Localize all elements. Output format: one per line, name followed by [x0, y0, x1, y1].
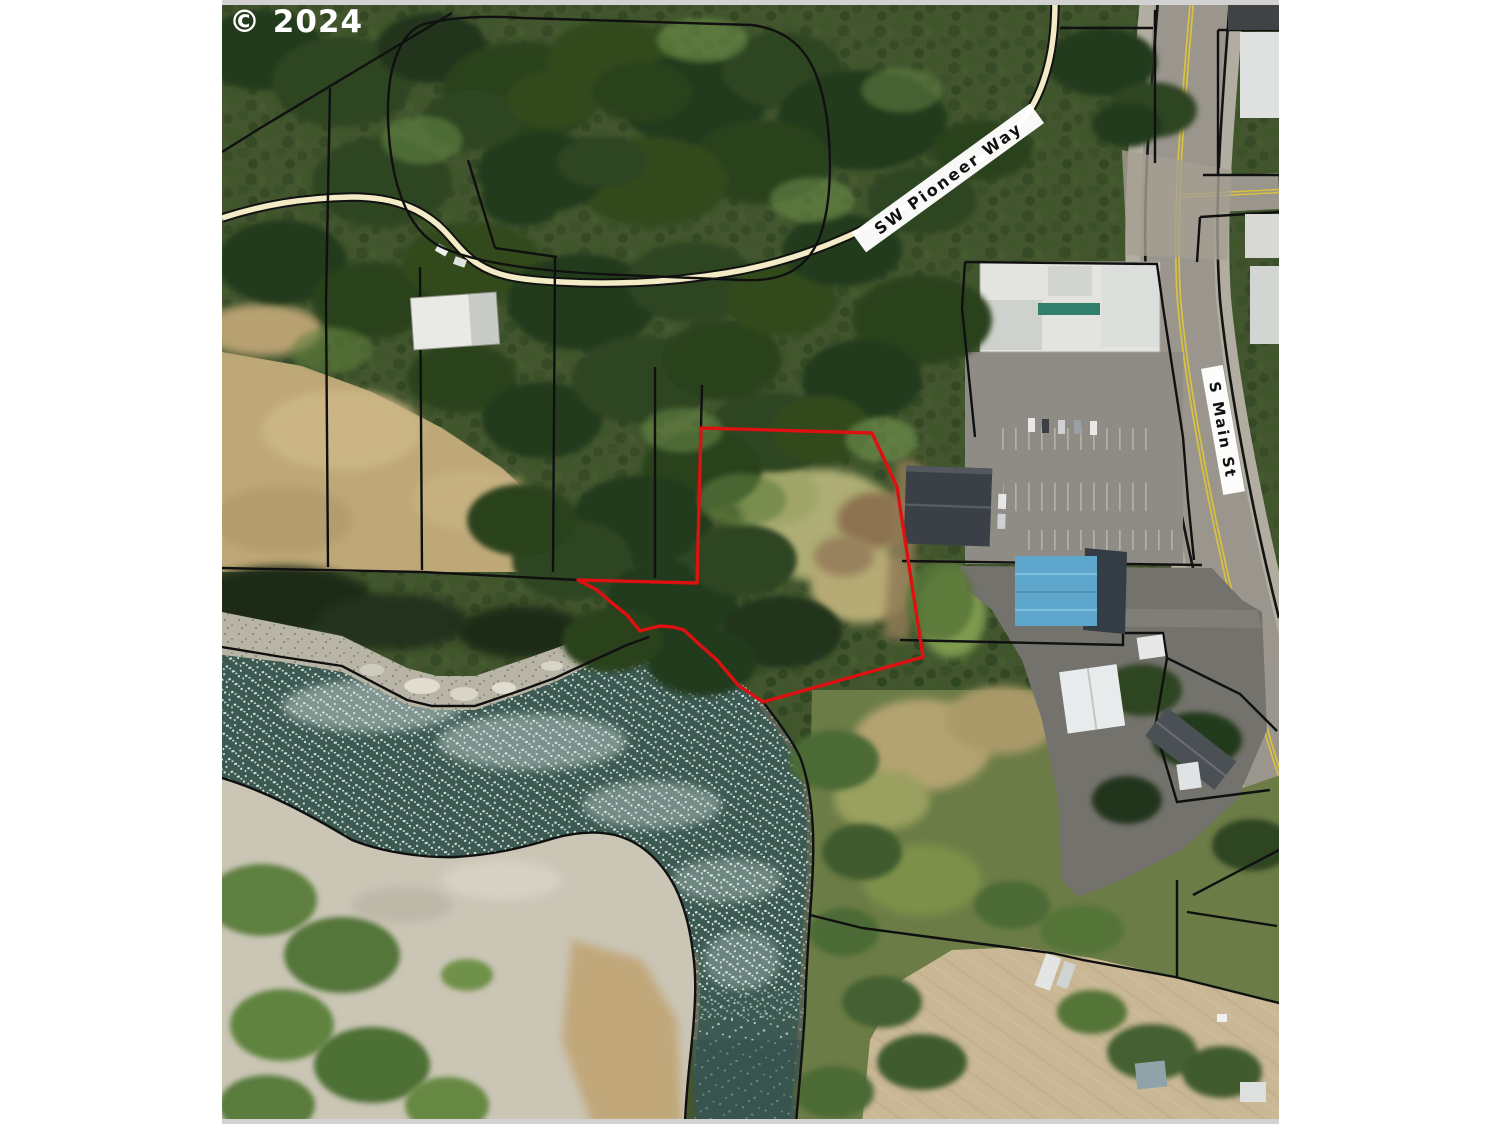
building-east-of-road-2 [1250, 266, 1279, 344]
blue-roof-building [1015, 548, 1127, 634]
white-gable-building [1059, 664, 1125, 733]
small-white-structure [1137, 634, 1166, 659]
pool [1135, 1061, 1168, 1090]
aerial-map-image: SW Pioneer Way S Main St © 2024 [222, 0, 1279, 1124]
page: { "canvas": { "width": 1505, "height": 1… [0, 0, 1505, 1129]
building-top-right-white [1240, 32, 1279, 118]
map-border-top [222, 0, 1279, 5]
trailer [1176, 762, 1201, 791]
small-structure [1217, 1014, 1227, 1022]
shed [1240, 1082, 1266, 1102]
white-roof-building-west [410, 292, 499, 350]
building-east-of-road-1 [1245, 214, 1279, 258]
copyright-watermark: © 2024 [229, 4, 363, 40]
map-border-bottom [222, 1119, 1279, 1124]
